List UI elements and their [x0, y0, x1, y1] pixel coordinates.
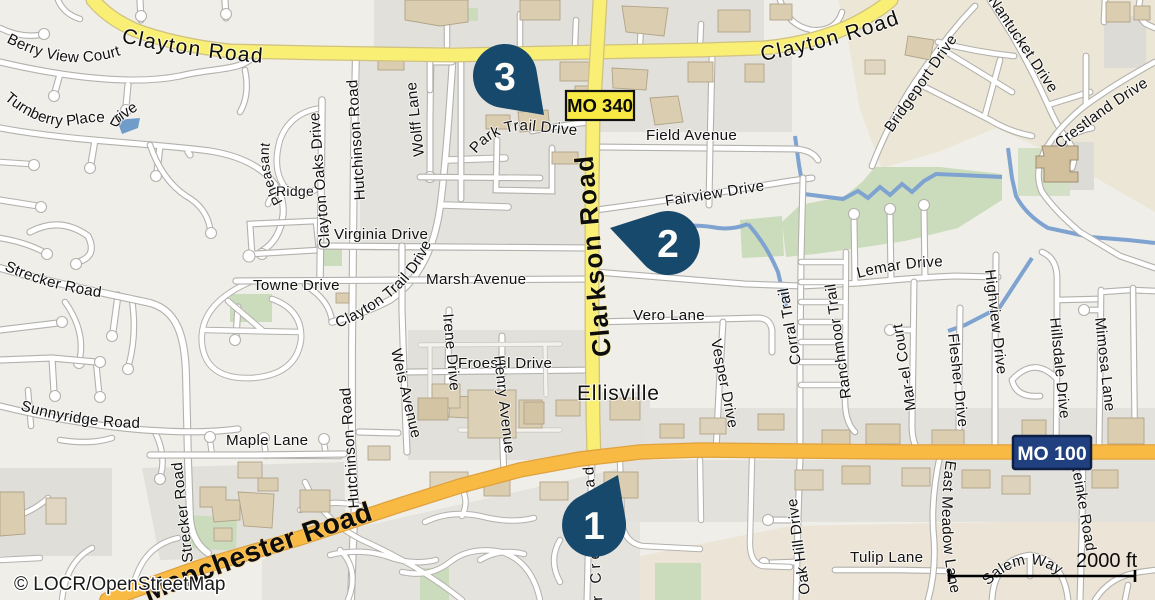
svg-text:Vero Lane: Vero Lane	[633, 307, 705, 324]
svg-text:Marsh Avenue: Marsh Avenue	[426, 271, 526, 288]
svg-text:Towne Drive: Towne Drive	[253, 277, 340, 294]
svg-text:1: 1	[583, 505, 605, 548]
svg-text:Ellisville: Ellisville	[577, 382, 660, 405]
svg-text:Maple Lane: Maple Lane	[226, 432, 308, 449]
svg-text:Ridge: Ridge	[276, 183, 314, 199]
svg-text:MO 100: MO 100	[1017, 443, 1087, 465]
svg-text:2000 ft: 2000 ft	[1076, 550, 1138, 572]
svg-text:2: 2	[657, 223, 679, 266]
svg-text:3: 3	[494, 56, 516, 99]
svg-text:Virginia Drive: Virginia Drive	[334, 226, 428, 243]
svg-text:Field Avenue: Field Avenue	[646, 127, 737, 144]
svg-text:MO 340: MO 340	[567, 95, 633, 116]
svg-text:© LOCR/OpenStreetMap: © LOCR/OpenStreetMap	[14, 574, 225, 595]
svg-text:Tulip Lane: Tulip Lane	[850, 549, 923, 566]
